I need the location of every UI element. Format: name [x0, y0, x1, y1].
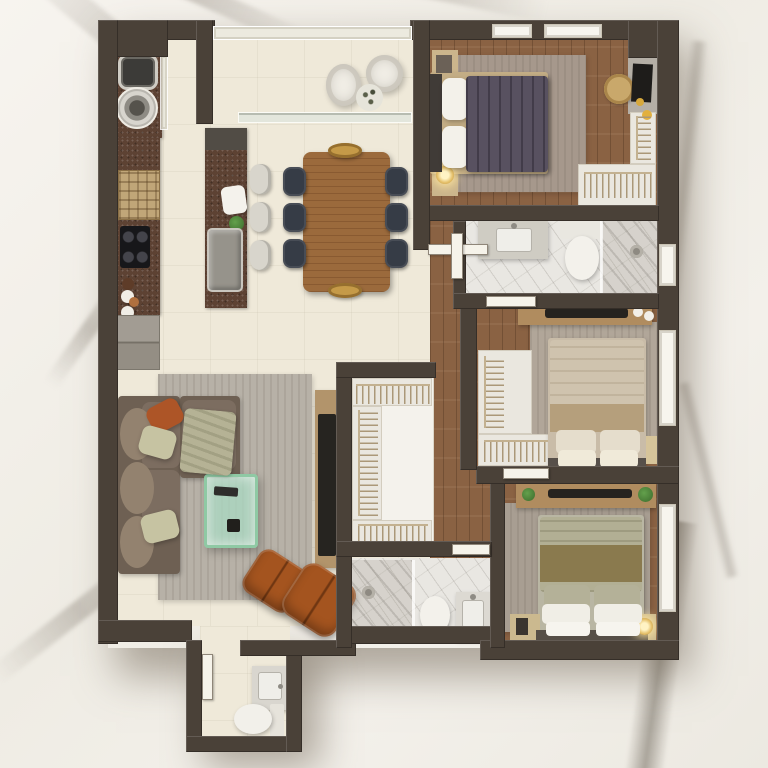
bedroom3-pillow: [546, 622, 590, 636]
bedroom1-photo-frame: [436, 55, 452, 73]
bedroom1-gold-decor: [636, 98, 644, 106]
bedroom3-window: [659, 504, 676, 612]
wall-bathroom1-top: [415, 205, 659, 221]
balcony-flower-pot: [356, 84, 383, 111]
brass-serving-bowl: [328, 143, 362, 158]
bedroom1-closet-hangers: [584, 172, 652, 198]
dining-chair: [283, 239, 306, 268]
wall-bathroom2-bottom: [338, 626, 497, 644]
brass-serving-bowl: [328, 283, 362, 298]
bedroom3-tv: [548, 489, 632, 498]
bathroom1-faucet: [511, 223, 517, 229]
coffee-table-glass: [204, 474, 258, 548]
bar-stool: [250, 240, 271, 270]
coffee-table-book: [227, 519, 240, 532]
bedroom1-closet-hangers: [636, 116, 651, 160]
bathroom1-sink: [496, 228, 532, 252]
pantry-baskets: [118, 170, 160, 220]
wall-powder-right: [286, 640, 302, 752]
bathroom1-window: [659, 244, 676, 286]
island-dark-end: [205, 128, 247, 150]
bathroom1-shower-zone: [602, 221, 657, 297]
wall-bottom-left: [98, 620, 192, 642]
dining-chair: [283, 203, 306, 232]
island-napkin: [220, 184, 248, 215]
wall-closet-left: [336, 362, 352, 648]
wall-bedroom1-left: [413, 20, 430, 250]
bedroom3-pillow: [542, 604, 590, 624]
refrigerator: [115, 315, 160, 370]
balcony-glass-rail: [238, 112, 412, 123]
bedroom1-window: [492, 24, 532, 38]
bathroom1-shower-head: [630, 245, 643, 258]
bathroom2-faucet: [470, 594, 476, 600]
bedroom2-door: [486, 296, 536, 307]
bedroom1-pillow: [442, 126, 468, 168]
laundry-glass-partition: [160, 55, 168, 130]
balcony-window: [213, 26, 412, 40]
dining-table: [303, 152, 390, 292]
bedroom1-duvet-plum: [466, 76, 548, 172]
coffee-canister: [122, 278, 134, 290]
bedroom2-window: [659, 330, 676, 426]
apartment-floor-plan: [0, 0, 768, 768]
bedroom3-pillow: [596, 622, 640, 636]
kitchen-bowl: [129, 297, 139, 307]
powder-room-toilet-tank: [270, 704, 284, 738]
wall-bedroom3-left: [490, 482, 505, 648]
powder-room-toilet-bowl: [234, 704, 272, 734]
bedroom3-pillow: [594, 604, 642, 624]
bedroom2-closet-hangers: [484, 356, 504, 428]
bedroom3-olive-throw: [540, 545, 642, 582]
island-sink: [207, 228, 243, 292]
tv-remote: [214, 486, 239, 497]
bedroom3-plant: [638, 487, 653, 502]
wall-bedroom2-left: [460, 305, 477, 470]
dining-chair: [385, 239, 408, 268]
wall-closet-top: [336, 362, 436, 378]
bathroom1-door: [451, 233, 463, 279]
throw-blanket: [179, 408, 236, 476]
bedroom2-tv: [545, 308, 628, 318]
wall-left: [98, 20, 118, 644]
wall-bedroom3-bottom: [480, 640, 679, 660]
bar-stool: [250, 202, 271, 232]
bedroom2-closet-hangers: [484, 440, 548, 462]
bedroom1-rattan-chair: [604, 74, 634, 104]
dining-chair: [283, 167, 306, 196]
bar-stool: [250, 164, 271, 194]
bathroom2-sink: [462, 600, 484, 628]
bedroom2-duvet-fold: [550, 404, 644, 432]
bedroom1-pillow: [442, 78, 468, 120]
bathroom1-toilet-bowl: [565, 236, 599, 280]
bathroom2-shower-head: [362, 586, 375, 599]
bedroom1-window: [544, 24, 602, 38]
walkin-closet-hangers: [356, 384, 430, 404]
powder-room-door: [202, 654, 213, 700]
washing-machine: [116, 87, 158, 129]
wall-powder-bottom: [186, 736, 302, 752]
bedroom1-headboard: [430, 74, 442, 172]
bathroom1-shower-glass: [600, 221, 603, 297]
bedroom2-decor-knob: [644, 311, 654, 321]
wall-balcony-left: [196, 20, 213, 124]
bedroom1-monitor: [631, 64, 653, 103]
wall-bathroom1-bottom: [453, 293, 659, 309]
bedroom3-door: [503, 468, 549, 479]
tv-screen-living: [318, 414, 336, 556]
dining-chair: [385, 203, 408, 232]
sofa-back-cushion: [120, 462, 154, 514]
dining-chair: [385, 167, 408, 196]
walkin-closet-hangers: [358, 410, 378, 516]
powder-room-faucet: [278, 684, 283, 689]
laundry-sink: [118, 54, 158, 90]
bedroom3-plant: [522, 488, 535, 501]
bathroom2-door: [452, 544, 490, 555]
bedroom3-photo-frame: [516, 618, 528, 635]
cooktop: [120, 226, 150, 268]
